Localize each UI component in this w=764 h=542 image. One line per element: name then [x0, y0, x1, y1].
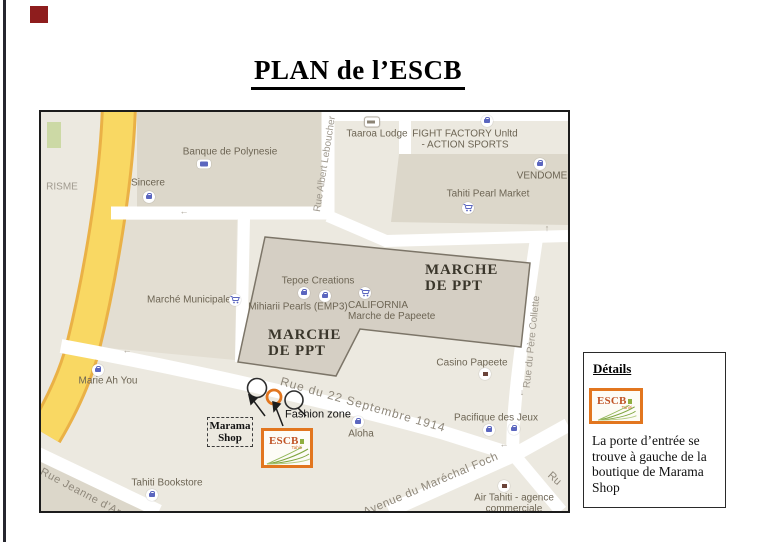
oneway-arrow-icon: ↓	[520, 387, 525, 397]
shopping-cart-icon	[229, 294, 241, 306]
fashion-zone-label: Fashion zone	[285, 410, 351, 421]
poi-label-california: CALIFORNIA	[348, 300, 408, 311]
poi-label-fight-factory-2: - ACTION SPORTS	[421, 140, 508, 151]
shopping-bag-icon	[352, 416, 364, 428]
shopping-bag-icon	[298, 287, 310, 299]
poi-label-fight-factory: FIGHT FACTORY Unltd	[412, 129, 517, 140]
escb-logo-swoosh	[592, 405, 640, 421]
poi-label-air-tahiti: Air Tahiti - agence	[474, 493, 554, 504]
poi-label-tepoe: Tepoe Creations	[282, 276, 355, 287]
marama-shop-callout: Marama Shop	[207, 417, 253, 447]
details-text: La porte d’entrée se trouve à gauche de …	[592, 433, 724, 495]
poi-label-aloha: Aloha	[348, 429, 374, 440]
shopping-bag-icon	[146, 489, 158, 501]
poi-label-marie-ah-you: Marie Ah You	[79, 376, 138, 387]
poi-label-air-tahiti-2: commerciale	[486, 504, 543, 514]
details-panel: Détails ESCB Tahiti La porte d’entrée se…	[583, 352, 726, 508]
shopping-bag-icon	[483, 424, 495, 436]
details-title: Détails	[593, 361, 631, 377]
shopping-bag-icon	[143, 191, 155, 203]
poi-label-casino: Casino Papeete	[436, 358, 507, 369]
oneway-arrow-icon: ↑	[545, 223, 550, 233]
shopping-bag-icon	[534, 158, 546, 170]
marama-shop-line1: Marama	[208, 420, 252, 432]
poi-label-sincere: Sincere	[131, 178, 165, 189]
poi-label-vendome: VENDOME	[517, 171, 568, 182]
poi-label-pacifique: Pacifique des Jeux	[454, 413, 538, 424]
shopping-bag-icon	[92, 364, 104, 376]
oneway-arrow-icon: ←	[180, 206, 189, 216]
poi-label-pearl-market: Tahiti Pearl Market	[447, 189, 530, 200]
marche-ppt-label-line1: MARCHE	[425, 262, 498, 278]
escb-logo-swoosh	[264, 447, 310, 465]
oneway-arrow-icon: ←	[500, 439, 509, 449]
document-page: PLAN de l’ESCB	[0, 0, 764, 542]
marche-ppt-label-line2: DE PPT	[425, 278, 498, 294]
shopping-cart-icon	[462, 202, 474, 214]
poi-label-risme: RISME	[46, 182, 78, 193]
bank-card-icon	[197, 160, 211, 169]
oneway-arrow-icon: ←	[123, 345, 132, 355]
casino-marker-icon	[479, 368, 491, 380]
park-patch	[47, 122, 61, 148]
arrow-escb-line	[276, 408, 283, 426]
shopping-cart-icon	[359, 287, 371, 299]
poi-label-mihiarii: Mihiarii Pearls (EMP3)	[248, 302, 347, 313]
page-title: PLAN de l’ESCB	[251, 55, 465, 90]
block-banque	[137, 112, 323, 208]
map-canvas: ← ← ↑ ↓ ← RISME Banque de Polynesie Sinc…	[39, 110, 570, 513]
lodging-icon	[364, 117, 380, 128]
escb-logo: ESCB Tahiti	[261, 428, 313, 468]
poi-label-california-2: Marche de Papeete	[348, 311, 435, 322]
shopping-bag-icon	[481, 115, 493, 127]
left-margin-line	[3, 0, 6, 542]
poi-label-banque: Banque de Polynesie	[183, 147, 278, 158]
office-marker-icon	[498, 480, 510, 492]
marche-ppt-label2-line2: DE PPT	[268, 343, 341, 359]
marche-ppt-label2-line1: MARCHE	[268, 327, 341, 343]
shopping-bag-icon	[319, 290, 331, 302]
escb-logo-details: ESCB Tahiti	[589, 388, 643, 424]
poi-label-municipale: Marché Municipale	[147, 295, 231, 306]
arrow-marama-line	[253, 400, 265, 416]
red-corner-mark	[30, 6, 48, 23]
marama-shop-line2: Shop	[208, 432, 252, 444]
poi-label-bookstore: Tahiti Bookstore	[131, 478, 202, 489]
poi-label-taaroa: Taaroa Lodge	[346, 129, 407, 140]
shopping-bag-icon	[508, 423, 520, 435]
